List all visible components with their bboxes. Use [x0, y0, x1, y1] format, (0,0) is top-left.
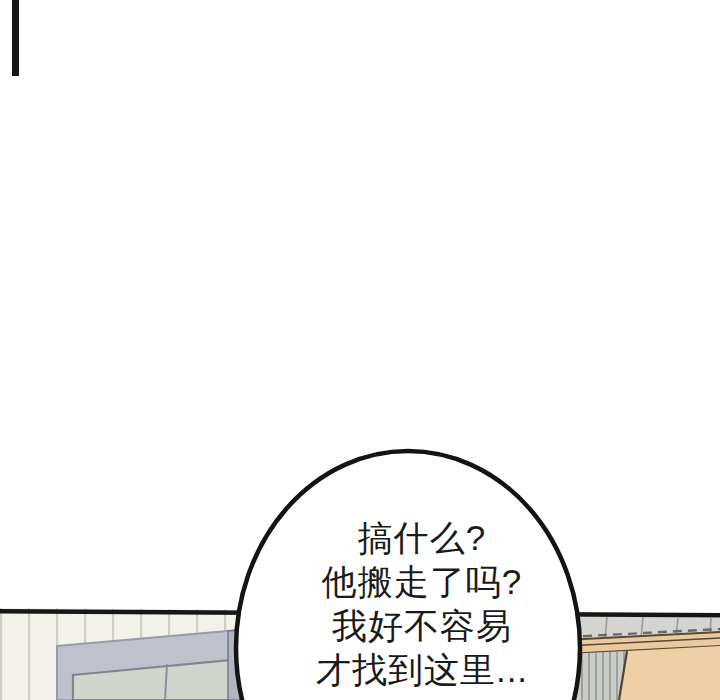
speech-line-1: 搞什么?: [262, 516, 582, 560]
speech-line-2: 他搬走了吗?: [262, 560, 582, 604]
stray-ink-mark: [12, 0, 19, 76]
cabinet-panel: [619, 646, 720, 700]
speech-line-4: 才找到这里...: [262, 648, 582, 692]
speech-line-3: 我好不容易: [262, 604, 582, 648]
speech-bubble-text: 搞什么? 他搬走了吗? 我好不容易 才找到这里...: [262, 516, 582, 692]
comic-panel: 搞什么? 他搬走了吗? 我好不容易 才找到这里...: [0, 0, 720, 700]
cabinet-area: [565, 615, 720, 700]
